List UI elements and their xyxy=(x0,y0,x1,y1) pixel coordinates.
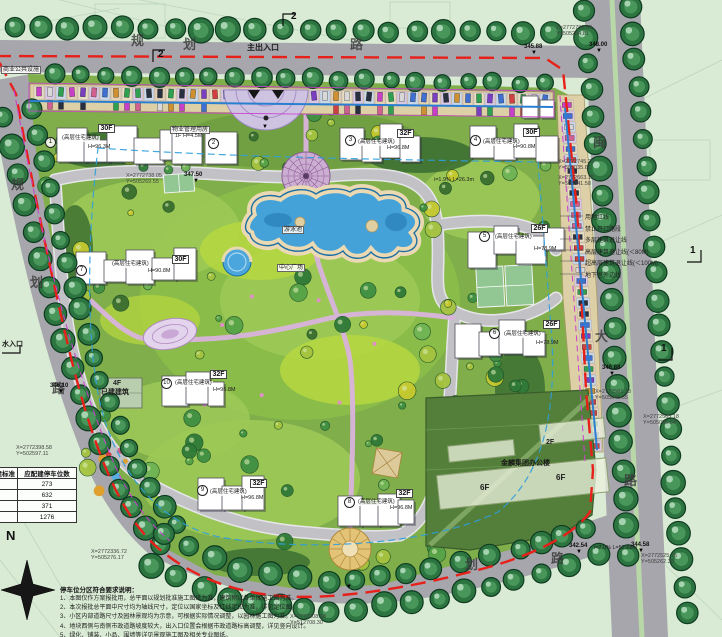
parking-table-header-count: 应配建停车位数 xyxy=(18,468,77,479)
notes-item-4: 5、绿化、铺装、小品、围墙等详见景观施工图及相关专业图纸。 xyxy=(60,632,500,637)
south-circular-plaza xyxy=(329,528,371,570)
legend-item-0: 用地红线 xyxy=(585,212,658,224)
table-row: 273 xyxy=(0,479,77,490)
notes-block: 停车位分区符合要求说明： 1、本图仅作方案报批用，总平面以规划批准施工图纸为准，… xyxy=(60,584,500,637)
table-row: 371 xyxy=(0,501,77,512)
legend-item-5: 地下室外边线 xyxy=(585,270,658,282)
swimming-pool xyxy=(246,189,420,259)
notes-item-2: 3、小区内部道路尺寸及园林景观均为示意，可根据实际情况调整，以园林施工图为准。 xyxy=(60,613,500,622)
site-plan-canvas: 规划路规划路闽大路划路主出入口水入口商业公共设施物业管理用房1F H=4.5M游… xyxy=(0,0,722,637)
site-plan-drawing xyxy=(0,0,722,637)
parking-table-header-standard: 配建标准 xyxy=(0,468,18,479)
table-row: 632 xyxy=(0,490,77,501)
legend-item-3: 高层建筑退让线(＜80M) xyxy=(585,247,658,259)
legend-item-4: 超高层建筑退让线(＜100M) xyxy=(585,258,658,270)
small-square-plaza xyxy=(372,448,402,478)
notes-item-1: 2、本次报批总平面中尺寸均为轴线尺寸，定位以国家坐标及红线定位为准，详见定位图。 xyxy=(60,604,500,613)
notes-title: 停车位分区符合要求说明： xyxy=(60,584,500,594)
parking-table: 配建标准 应配建停车位数 2736323711276 xyxy=(0,467,77,523)
legend-item-1: 禁止开口路段 xyxy=(585,224,658,236)
setback-legend: 用地红线禁止开口路段多层建筑退让线高层建筑退让线(＜80M)超高层建筑退让线(＜… xyxy=(585,212,658,281)
table-row: 1276 xyxy=(0,512,77,523)
legend-item-2: 多层建筑退让线 xyxy=(585,235,658,247)
north-label: N xyxy=(6,528,15,543)
small-pond xyxy=(223,248,251,276)
notes-item-3: 4、地块西侧与南侧市政道路坡度较大，出入口位置会根据市政道路标高调整，详见竖向设… xyxy=(60,623,500,632)
notes-item-0: 1、本图仅作方案报批用，总平面以规划批准施工图纸为准，建筑物以各单体施工图为准。 xyxy=(60,595,500,604)
